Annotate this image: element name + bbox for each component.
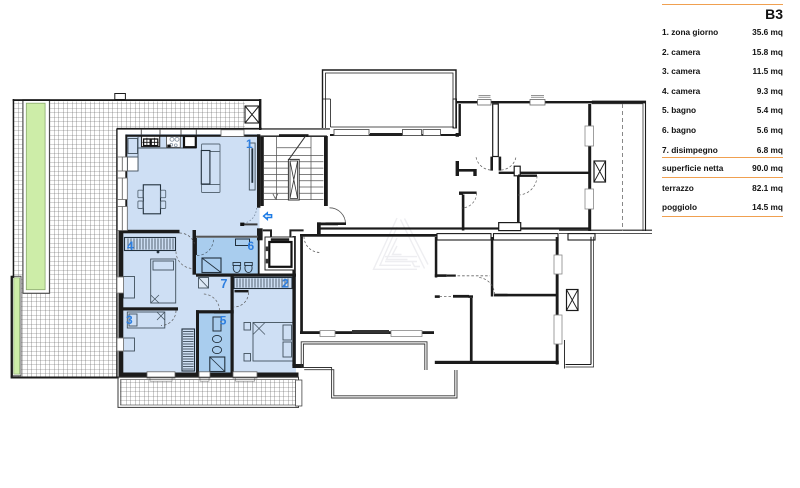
svg-text:5: 5 bbox=[220, 314, 227, 328]
svg-text:2: 2 bbox=[282, 277, 289, 291]
svg-text:4: 4 bbox=[127, 239, 134, 253]
svg-text:3: 3 bbox=[126, 313, 133, 327]
svg-text:1: 1 bbox=[246, 137, 253, 151]
svg-text:7: 7 bbox=[221, 277, 228, 291]
svg-text:6: 6 bbox=[248, 239, 255, 253]
